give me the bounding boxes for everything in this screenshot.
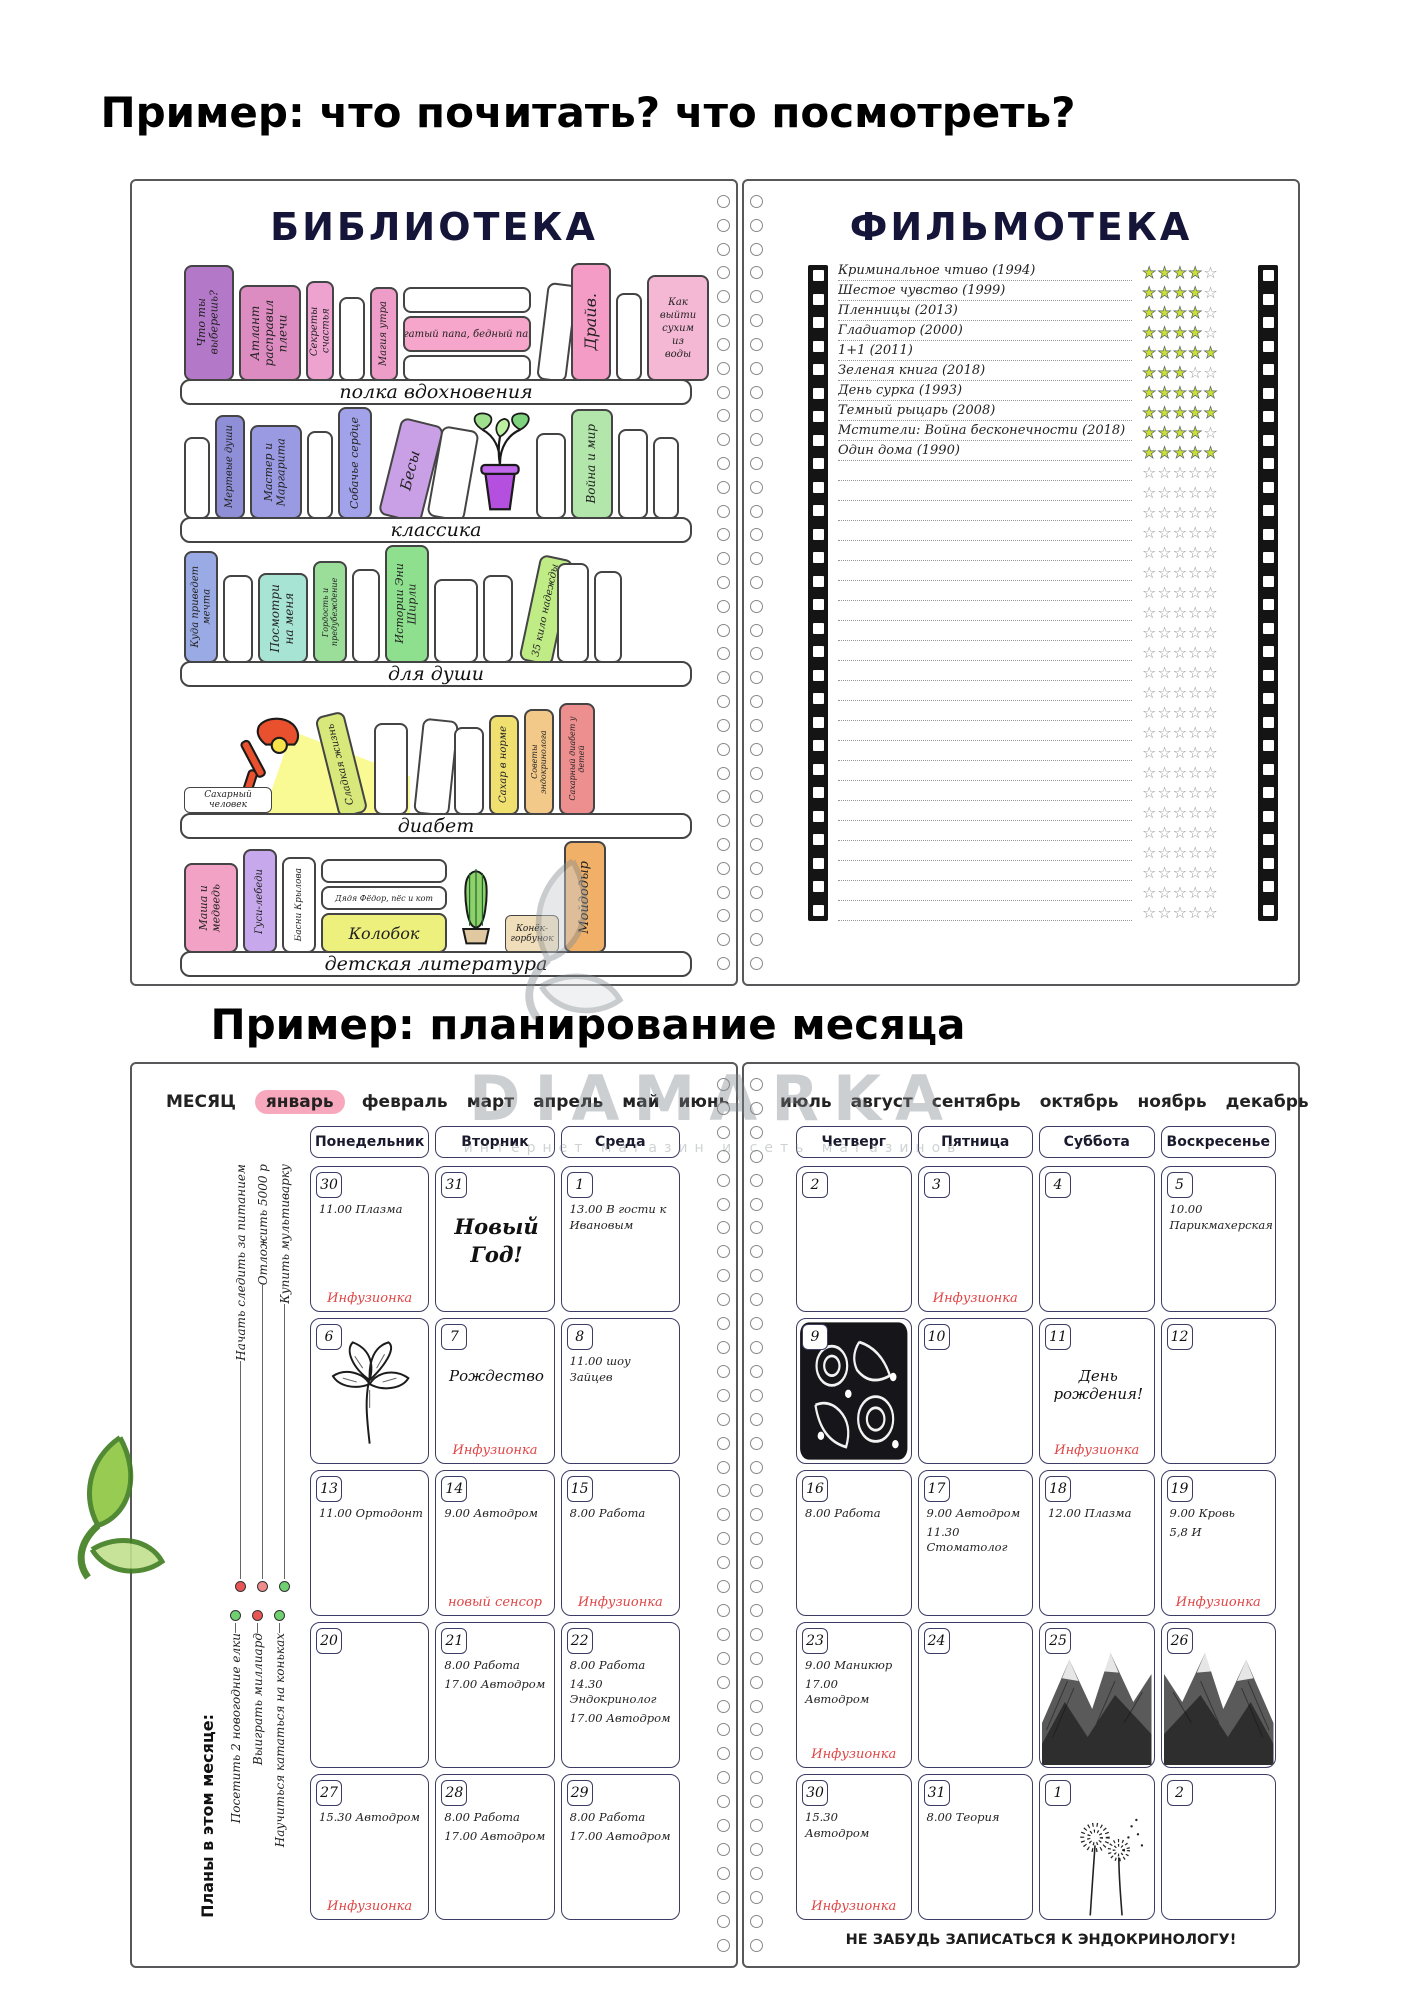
star-icon: ☆: [1203, 685, 1218, 701]
calendar-cell: 12: [1161, 1318, 1277, 1464]
star-icon: ☆: [1203, 465, 1218, 481]
star-icon: ☆: [1157, 905, 1172, 921]
spiral-hole: [717, 195, 730, 208]
calendar-cell: 2715.30 АвтодромИнфузионка: [310, 1774, 429, 1920]
book: Каквыйтисухимизводы: [647, 275, 709, 381]
calendar-cell: 6: [310, 1318, 429, 1464]
spiral-hole: [717, 552, 730, 565]
star-icon: ☆: [1142, 865, 1157, 881]
star-icon: ☆: [1203, 725, 1218, 741]
film-title: [838, 679, 1132, 681]
spiral-hole: [750, 1389, 763, 1402]
film-frame: [1263, 764, 1274, 775]
film-title: Мстители: Война бесконечности (2018): [838, 424, 1132, 441]
spiral-hole: [717, 1174, 730, 1187]
star-icon: ★: [1188, 325, 1203, 341]
month-name: апрель: [531, 1090, 605, 1114]
spiral-hole: [750, 266, 763, 279]
star-icon: ☆: [1157, 825, 1172, 841]
spiral-hole: [750, 314, 763, 327]
date-badge: 28: [441, 1780, 467, 1806]
star-icon: ☆: [1142, 525, 1157, 541]
film-title: [838, 739, 1132, 741]
film-frame: [813, 881, 824, 892]
spiral-hole: [717, 505, 730, 518]
star-icon: ☆: [1203, 765, 1218, 781]
star-icon: ☆: [1157, 545, 1172, 561]
day-header: Пятница: [918, 1126, 1034, 1158]
spiral-hole: [717, 933, 730, 946]
film-frame: [1263, 623, 1274, 634]
book: Гуси-лебеди: [243, 849, 277, 953]
star-icon: ☆: [1173, 885, 1188, 901]
calendar-cell: 4: [1039, 1166, 1155, 1312]
date-badge: 24: [924, 1628, 950, 1654]
film-frame: [813, 270, 824, 281]
film-frame: [813, 787, 824, 798]
book: Маша и медведь: [184, 863, 238, 953]
spiral-hole: [717, 1723, 730, 1736]
film-title: [838, 839, 1132, 841]
calendar-cell: 11День рождения!Инфузионка: [1039, 1318, 1155, 1464]
star-icon: ☆: [1142, 605, 1157, 621]
star-icon: ☆: [1142, 505, 1157, 521]
sidebar: Начать следить за питаниемОтложить 5000 …: [198, 1164, 294, 1918]
spiral-hole: [717, 647, 730, 660]
star-icon: ★: [1173, 445, 1188, 461]
spiral-hole: [750, 1221, 763, 1234]
month-name: октябрь: [1038, 1090, 1121, 1114]
film-title: [838, 799, 1132, 801]
plan-item: Посетить 2 новогодние елки: [228, 1608, 243, 1918]
cactus-decoration: [452, 861, 500, 953]
calendar-cell: 318.00 Теория: [918, 1774, 1034, 1920]
film-rating: ☆☆☆☆☆: [1142, 565, 1248, 581]
highlight-entry: Инфузионка: [436, 1443, 553, 1458]
event-entry: 8.00 Работа: [570, 1810, 674, 1826]
film-rating: ☆☆☆☆☆: [1142, 505, 1248, 521]
spiral-hole: [717, 1532, 730, 1545]
film-row: ☆☆☆☆☆: [838, 841, 1248, 861]
star-icon: ★: [1142, 265, 1157, 281]
film-frame: [1263, 881, 1274, 892]
film-rating: ☆☆☆☆☆: [1142, 685, 1248, 701]
spiral-hole: [717, 1126, 730, 1139]
film-frame: [813, 458, 824, 469]
star-icon: ☆: [1203, 305, 1218, 321]
star-icon: ☆: [1142, 625, 1157, 641]
star-icon: ☆: [1203, 365, 1218, 381]
book: Мастер и Маргарита: [250, 425, 302, 519]
filmoteka-page: ФИЛЬМОТЕКА Криминальное чтиво (1994)★★★★…: [742, 179, 1300, 986]
event-entry: 11.30 Стоматолог: [927, 1525, 1028, 1556]
star-icon: ☆: [1142, 565, 1157, 581]
star-icon: ☆: [1188, 665, 1203, 681]
event-entry: 11.00 Ортодонт: [319, 1506, 423, 1522]
film-frame: [813, 341, 824, 352]
star-icon: ☆: [1142, 545, 1157, 561]
star-icon: ☆: [1157, 645, 1172, 661]
film-frame: [1263, 341, 1274, 352]
book: Атлант расправил плечи: [239, 285, 301, 381]
shelf-books: Мертвые душиМастер и МаргаритаСобачье се…: [180, 407, 692, 519]
star-icon: ☆: [1173, 545, 1188, 561]
book: [403, 287, 531, 313]
star-icon: ☆: [1188, 805, 1203, 821]
event-entry: 12.00 Плазма: [1048, 1506, 1149, 1522]
star-icon: ☆: [1203, 625, 1218, 641]
highlight-entry: Инфузионка: [311, 1291, 428, 1306]
spiral-holes: [717, 195, 730, 970]
event-entry: 14.30 Эндокринолог: [570, 1677, 674, 1708]
date-badge: 1: [567, 1172, 593, 1198]
star-icon: ★: [1142, 385, 1157, 401]
event-entry: 8.00 Работа: [570, 1658, 674, 1674]
month-name: август: [849, 1090, 915, 1114]
plan-item: Научиться кататься на коньках: [272, 1608, 287, 1918]
bookshelves: Что ты выберешь?Атлант расправил плечиСе…: [180, 263, 692, 977]
film-title: [838, 919, 1132, 921]
star-icon: ☆: [1188, 865, 1203, 881]
film-title: Шестое чувство (1999): [838, 284, 1132, 301]
spiral-hole: [717, 314, 730, 327]
book: Магия утра: [370, 287, 398, 381]
star-icon: ★: [1188, 345, 1203, 361]
plan-item: Выиграть миллиард: [250, 1608, 265, 1918]
film-frame: [813, 834, 824, 845]
date-badge: 6: [316, 1324, 342, 1350]
book-label: Сахарный человек: [184, 787, 272, 813]
book: [184, 437, 210, 519]
calendar-cell: 3011.00 ПлазмаИнфузионка: [310, 1166, 429, 1312]
goal-status-dot: [279, 1581, 290, 1592]
event-entry: 8.00 Работа: [444, 1658, 548, 1674]
star-icon: ☆: [1142, 685, 1157, 701]
film-rating: ★★★★☆: [1142, 325, 1248, 341]
film-title: [838, 659, 1132, 661]
film-row: ☆☆☆☆☆: [838, 581, 1248, 601]
film-title: [838, 819, 1132, 821]
spiral-hole: [750, 862, 763, 875]
film-row: ☆☆☆☆☆: [838, 741, 1248, 761]
spiral-hole: [750, 957, 763, 970]
shelf: Куда приведет мечтаПосмотри на меняГордо…: [180, 545, 692, 687]
film-area: Криминальное чтиво (1994)★★★★☆Шестое чув…: [808, 261, 1278, 921]
shelf-label: детская литература: [325, 953, 548, 975]
film-list: Криминальное чтиво (1994)★★★★☆Шестое чув…: [838, 261, 1248, 921]
calendar-cell: 1: [1039, 1774, 1155, 1920]
star-icon: ★: [1173, 345, 1188, 361]
shelf: Мертвые душиМастер и МаргаритаСобачье се…: [180, 407, 692, 543]
day-header-row: ПонедельникВторникСреда: [310, 1126, 680, 1158]
star-icon: ☆: [1173, 825, 1188, 841]
film-title: Темный рыцарь (2008): [838, 404, 1132, 421]
spiral-holes: [717, 1078, 730, 1952]
event-entry: 8.00 Работа: [570, 1506, 674, 1522]
star-icon: ☆: [1173, 905, 1188, 921]
star-icon: ☆: [1173, 485, 1188, 501]
spiral-hole: [750, 695, 763, 708]
spiral-hole: [750, 1676, 763, 1689]
book: Гордость и предубеждение: [313, 561, 347, 663]
film-rating: ☆☆☆☆☆: [1142, 665, 1248, 681]
spiral-hole: [750, 528, 763, 541]
calendar-cell: 113.00 В гости к Ивановым: [561, 1166, 680, 1312]
book: [536, 433, 566, 519]
calendar-cell: 288.00 Работа17.00 Автодром: [435, 1774, 554, 1920]
star-icon: ☆: [1173, 505, 1188, 521]
book: [374, 723, 408, 815]
spiral-hole: [750, 362, 763, 375]
spiral-hole: [717, 433, 730, 446]
spiral-hole: [717, 1604, 730, 1617]
calendar-cell: 2: [796, 1166, 912, 1312]
date-badge: 2: [1167, 1780, 1193, 1806]
film-row: ☆☆☆☆☆: [838, 721, 1248, 741]
spiral-hole: [717, 886, 730, 899]
spiral-hole: [750, 1293, 763, 1306]
star-icon: ☆: [1173, 625, 1188, 641]
library-page: БИБЛИОТЕКА Что ты выберешь?Атлант распра…: [130, 179, 738, 986]
star-icon: ★: [1157, 385, 1172, 401]
shelf: Что ты выберешь?Атлант расправил плечиСе…: [180, 263, 692, 405]
star-icon: ★: [1142, 305, 1157, 321]
star-icon: ☆: [1188, 645, 1203, 661]
spiral-hole: [717, 1484, 730, 1497]
month-name: март: [465, 1090, 516, 1114]
star-icon: ☆: [1188, 485, 1203, 501]
star-icon: ☆: [1157, 505, 1172, 521]
spiral-hole: [717, 1795, 730, 1808]
film-frame: [1263, 646, 1274, 657]
book-stack: Дядя Фёдор, пёс и котКолобок: [321, 859, 447, 953]
spiral-hole: [717, 1365, 730, 1378]
plans-title: Планы в этом месяце:: [198, 1714, 217, 1918]
star-icon: ☆: [1188, 365, 1203, 381]
desk-lamp: Сахарный человек: [184, 689, 334, 815]
film-rating: ☆☆☆☆☆: [1142, 705, 1248, 721]
film-frame: [813, 811, 824, 822]
film-row: ☆☆☆☆☆: [838, 761, 1248, 781]
film-title: [838, 619, 1132, 621]
spiral-hole: [750, 719, 763, 732]
spiral-hole: [750, 1747, 763, 1760]
star-icon: ☆: [1203, 285, 1218, 301]
spiral-hole: [750, 1150, 763, 1163]
film-row: Темный рыцарь (2008)★★★★★: [838, 401, 1248, 421]
film-frame: [1263, 670, 1274, 681]
calendar-cell: 168.00 Работа: [796, 1470, 912, 1616]
calendar-cell: 3Инфузионка: [918, 1166, 1034, 1312]
spiral-hole: [717, 1389, 730, 1402]
calendar-cell: 10: [918, 1318, 1034, 1464]
book: [223, 575, 253, 663]
spiral-hole: [750, 1174, 763, 1187]
star-icon: ☆: [1173, 745, 1188, 761]
star-icon: ★: [1142, 325, 1157, 341]
spiral-hole: [717, 1700, 730, 1713]
film-frame: [1263, 482, 1274, 493]
film-row: Мстители: Война бесконечности (2018)★★★★…: [838, 421, 1248, 441]
event-entry: 17.00 Автодром: [570, 1829, 674, 1845]
star-icon: ☆: [1188, 765, 1203, 781]
star-icon: ☆: [1203, 505, 1218, 521]
star-icon: ☆: [1142, 645, 1157, 661]
book: Драйв.: [571, 263, 611, 381]
spiral-hole: [717, 695, 730, 708]
film-frame: [813, 693, 824, 704]
film-title: Гладиатор (2000): [838, 324, 1132, 341]
spiral-hole: [717, 1867, 730, 1880]
calendar-spread: МЕСЯЦянварьфевральмартапрельмайиюнь Нача…: [130, 1062, 1300, 1968]
calendar-cell: 2: [1161, 1774, 1277, 1920]
star-icon: ☆: [1203, 705, 1218, 721]
highlight-entry: Инфузионка: [1162, 1595, 1276, 1610]
star-icon: ★: [1142, 365, 1157, 381]
film-rating: ★★★★★: [1142, 405, 1248, 421]
event-entry: 10.00 Парикмахерская: [1170, 1202, 1271, 1233]
film-title: [838, 699, 1132, 701]
date-badge: 11: [1045, 1324, 1071, 1350]
star-icon: ☆: [1157, 565, 1172, 581]
calendar-cell: 26: [1161, 1622, 1277, 1768]
book: Дядя Фёдор, пёс и кот: [321, 886, 447, 910]
spiral-hole: [750, 1078, 763, 1091]
film-frame: [1263, 834, 1274, 845]
calendar-body-left: Начать следить за питаниемОтложить 5000 …: [198, 1126, 680, 1920]
spiral-hole: [750, 1198, 763, 1211]
star-icon: ★: [1157, 445, 1172, 461]
date-badge: 13: [316, 1476, 342, 1502]
film-frame: [813, 646, 824, 657]
month-header-label: МЕСЯЦ: [166, 1092, 236, 1112]
film-frame: [1263, 905, 1274, 916]
film-frame: [1263, 411, 1274, 422]
calendar-right-page: июльавгустсентябрьоктябрьноябрьдекабрь Ч…: [742, 1062, 1300, 1968]
date-badge: 19: [1167, 1476, 1193, 1502]
film-rating: ★★★★☆: [1142, 305, 1248, 321]
month-name: июль: [778, 1090, 834, 1114]
star-icon: ☆: [1203, 905, 1218, 921]
star-icon: ☆: [1142, 745, 1157, 761]
film-rating: ☆☆☆☆☆: [1142, 645, 1248, 661]
spiral-hole: [750, 1580, 763, 1593]
date-badge: 30: [802, 1780, 828, 1806]
spiral-hole: [750, 1819, 763, 1832]
star-icon: ☆: [1188, 885, 1203, 901]
calendar-cell: 1311.00 Ортодонт: [310, 1470, 429, 1616]
event-entry: 11.00 Плазма: [319, 1202, 423, 1218]
spiral-hole: [717, 1819, 730, 1832]
film-frame: [813, 858, 824, 869]
book: Собачье сердце: [338, 407, 372, 519]
book: [557, 563, 589, 663]
star-icon: ★: [1157, 325, 1172, 341]
date-badge: 10: [924, 1324, 950, 1350]
spiral-hole: [750, 1484, 763, 1497]
month-name: май: [620, 1090, 661, 1114]
film-title: Пленницы (2013): [838, 304, 1132, 321]
month-name: сентябрь: [930, 1090, 1023, 1114]
date-badge: 17: [924, 1476, 950, 1502]
film-frame: [813, 670, 824, 681]
film-row: ☆☆☆☆☆: [838, 781, 1248, 801]
book: [594, 571, 622, 663]
star-icon: ☆: [1188, 905, 1203, 921]
spiral-hole: [750, 1102, 763, 1115]
star-icon: ★: [1142, 445, 1157, 461]
book: [434, 579, 478, 663]
shelf-books: Куда приведет мечтаПосмотри на меняГордо…: [180, 545, 692, 663]
book: Куда приведет мечта: [184, 551, 218, 663]
spiral-hole: [750, 1413, 763, 1426]
book: Посмотри на меня: [258, 573, 308, 663]
spiral-hole: [750, 647, 763, 660]
spiral-hole: [750, 743, 763, 756]
film-frame: [1263, 294, 1274, 305]
spiral-hole: [717, 719, 730, 732]
film-title: [838, 599, 1132, 601]
date-badge: 8: [567, 1324, 593, 1350]
calendar-cell: 1812.00 Плазма: [1039, 1470, 1155, 1616]
star-icon: ☆: [1157, 625, 1172, 641]
book: Колобок: [321, 913, 447, 953]
spiral-hole: [717, 1939, 730, 1952]
spiral-hole: [750, 409, 763, 422]
film-frame: [1263, 717, 1274, 728]
star-icon: ☆: [1173, 685, 1188, 701]
star-icon: ★: [1188, 265, 1203, 281]
film-rating: ☆☆☆☆☆: [1142, 825, 1248, 841]
star-icon: ☆: [1142, 785, 1157, 801]
reminder-note: НЕ ЗАБУДЬ ЗАПИСАТЬСЯ К ЭНДОКРИНОЛОГУ!: [784, 1932, 1298, 1948]
calendar-cell: 24: [918, 1622, 1034, 1768]
date-badge: 31: [924, 1780, 950, 1806]
spiral-hole: [750, 814, 763, 827]
film-row: ☆☆☆☆☆: [838, 541, 1248, 561]
film-row: ☆☆☆☆☆: [838, 481, 1248, 501]
date-badge: 26: [1167, 1628, 1193, 1654]
spiral-hole: [717, 1843, 730, 1856]
calendar-grid-left: ПонедельникВторникСреда 3011.00 ПлазмаИн…: [310, 1126, 680, 1920]
book: Сахарный диабет у детей: [559, 703, 595, 815]
spiral-hole: [717, 338, 730, 351]
highlight-entry: Инфузионка: [919, 1291, 1033, 1306]
star-icon: ☆: [1173, 705, 1188, 721]
star-icon: ★: [1157, 305, 1172, 321]
star-icon: ☆: [1173, 805, 1188, 821]
spiral-hole: [717, 1221, 730, 1234]
star-icon: ☆: [1157, 665, 1172, 681]
spiral-hole: [750, 457, 763, 470]
date-badge: 16: [802, 1476, 828, 1502]
spiral-hole: [717, 481, 730, 494]
film-strip-left: [808, 265, 828, 921]
star-icon: ☆: [1157, 865, 1172, 881]
star-icon: ★: [1157, 265, 1172, 281]
spiral-hole: [717, 576, 730, 589]
highlight-entry: Инфузионка: [797, 1747, 911, 1762]
spiral-hole: [717, 862, 730, 875]
film-rating: ☆☆☆☆☆: [1142, 865, 1248, 881]
star-icon: ☆: [1188, 845, 1203, 861]
film-title: [838, 539, 1132, 541]
book: [321, 859, 447, 883]
spiral-holes: [750, 195, 763, 970]
star-icon: ★: [1188, 385, 1203, 401]
shelf-bar: полка вдохновения: [180, 379, 692, 405]
star-icon: ☆: [1142, 725, 1157, 741]
